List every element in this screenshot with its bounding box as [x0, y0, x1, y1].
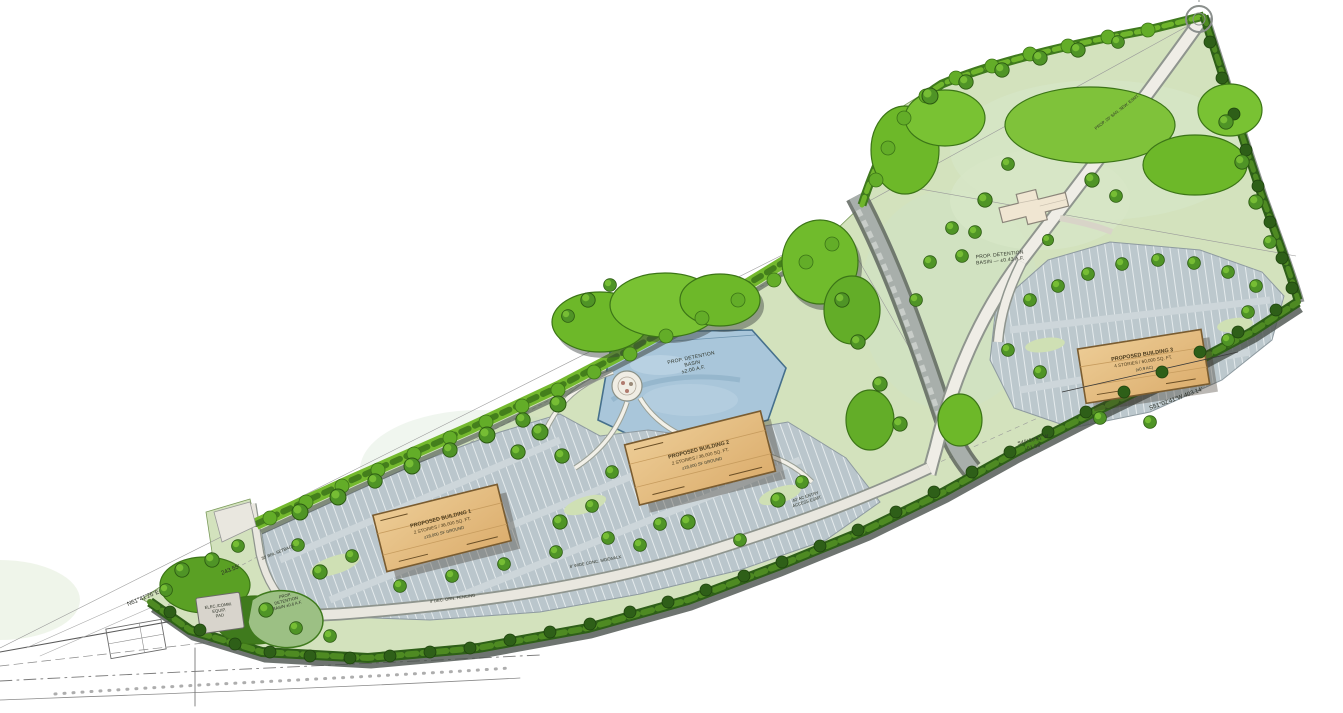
circular-plaza — [612, 371, 642, 401]
site-plan-drawing: PROPOSED BUILDING 1 2 STORIES / 36,000 S… — [0, 0, 1343, 713]
site-plan-page: PROPOSED BUILDING 1 2 STORIES / 36,000 S… — [0, 0, 1343, 713]
